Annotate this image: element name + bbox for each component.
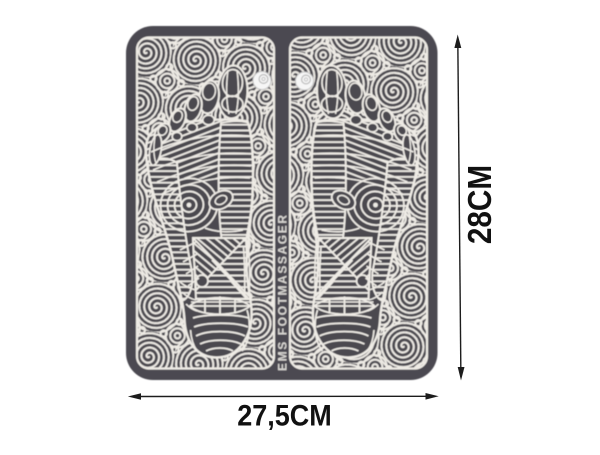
svg-text:28CM: 28CM [462,165,499,244]
svg-text:EMS FOOTMASSAGER: EMS FOOTMASSAGER [276,213,290,371]
svg-text:27,5CM: 27,5CM [237,399,331,433]
